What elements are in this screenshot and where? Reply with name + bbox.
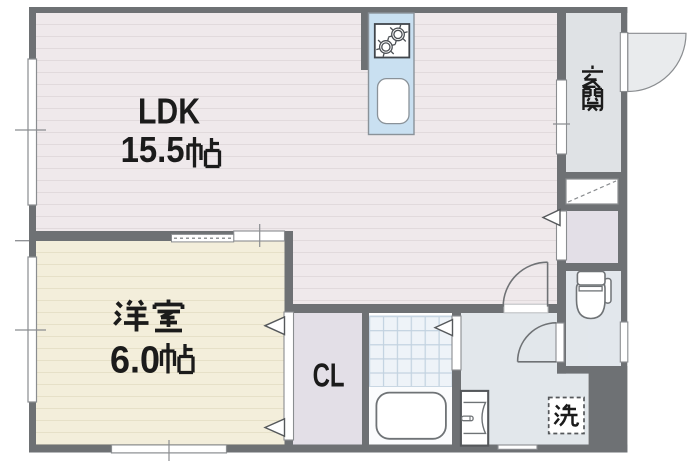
svg-text:15.5: 15.5 — [121, 129, 185, 170]
svg-text:CL: CL — [313, 357, 345, 394]
svg-text:6.0: 6.0 — [110, 340, 160, 382]
svg-text:LDK: LDK — [138, 91, 200, 132]
